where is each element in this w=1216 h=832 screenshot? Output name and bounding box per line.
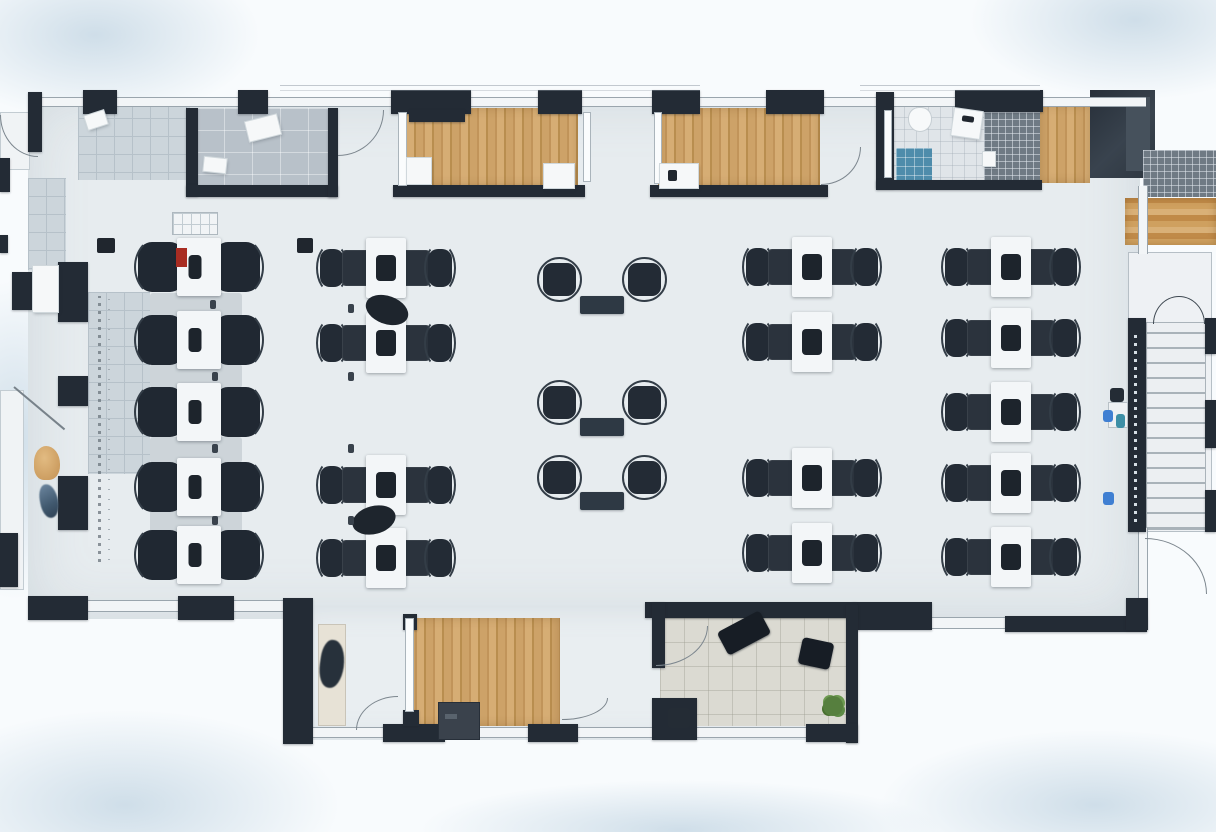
- side-table-m2: [580, 418, 624, 436]
- wall-left-block-2: [58, 262, 88, 322]
- coffee-machine: [668, 708, 690, 728]
- duo-desk: [177, 458, 221, 516]
- floor-chip-6: [348, 444, 354, 453]
- pod-chair-right-icon: [1053, 319, 1077, 357]
- floor-chip-2: [348, 304, 354, 313]
- desk-pod-c2: [748, 312, 878, 372]
- pod-desk: [991, 237, 1031, 297]
- floor-chip-5: [212, 444, 218, 453]
- wall-door-cap-bottom: [403, 710, 419, 726]
- wall-left-block-4: [58, 476, 88, 530]
- wall-stairs-right-2: [1205, 400, 1216, 448]
- construction-guides-2: [860, 85, 1040, 91]
- wood-strip-top: [1040, 105, 1090, 183]
- desk-pod-d2: [947, 308, 1077, 368]
- desk-pod-b1: [322, 238, 452, 298]
- wall-concrete-left: [186, 108, 198, 196]
- pod-chair-left-icon: [945, 319, 969, 357]
- pod-chair-left-icon: [320, 539, 344, 577]
- pair-chair-left-icon: [543, 386, 576, 419]
- pod-desk: [792, 448, 832, 508]
- wall-concrete-bottom: [186, 185, 338, 197]
- wall-wood1-inner-slab: [409, 110, 465, 122]
- mosaic-top-right: [1143, 150, 1216, 197]
- wall-lintel-t8: [955, 90, 1043, 112]
- wall-bottom-right-a: [852, 602, 932, 630]
- pod-chair-left-icon: [746, 534, 770, 572]
- wall-left-block-1: [12, 272, 32, 310]
- pod-chair-left-icon: [320, 249, 344, 287]
- floor-chip-3: [212, 372, 218, 381]
- desk-pod-d1: [947, 237, 1077, 297]
- shelf-table: [172, 212, 218, 235]
- pod-chair-left-icon: [945, 248, 969, 286]
- wood-room-bottom: [408, 618, 560, 726]
- pod-chair-left-icon: [320, 324, 344, 362]
- door-leaf-wood1-left: [398, 112, 407, 186]
- shower-tray: [983, 152, 995, 166]
- wood-bean-table: [34, 446, 60, 480]
- left-tile-strip: [28, 178, 66, 270]
- left-kitchen-cabinet: [33, 266, 58, 312]
- pod-chair-left-icon: [746, 459, 770, 497]
- pod-chair-right-icon: [428, 466, 452, 504]
- wall-stairs-right-3: [1205, 490, 1216, 532]
- wall-left-block-5: [0, 158, 10, 192]
- desk-pod-c3: [748, 448, 878, 508]
- pair-chair-right-icon: [628, 386, 661, 419]
- lounge-plant: [823, 696, 843, 716]
- pod-desk: [991, 382, 1031, 442]
- red-box-on-desk: [176, 248, 187, 267]
- wall-bottom-left-2: [178, 596, 234, 620]
- water-bottle-blue: [1103, 492, 1114, 505]
- dimension-marks-left: [98, 296, 110, 562]
- paper-concrete-room: [203, 157, 226, 173]
- water-station: [1106, 388, 1130, 434]
- printer-right: [297, 238, 313, 253]
- pod-chair-right-icon: [428, 324, 452, 362]
- pod-chair-right-icon: [854, 459, 878, 497]
- wall-lounge-right: [846, 605, 858, 743]
- duo-desk: [177, 238, 221, 296]
- pod-chair-right-icon: [854, 248, 878, 286]
- pod-desk: [792, 523, 832, 583]
- desk-duo-a4: [138, 458, 260, 516]
- dimension-marks-stairs: [1130, 330, 1140, 522]
- pod-chair-right-icon: [1053, 393, 1077, 431]
- smudge-bottom-center: [420, 780, 940, 832]
- wall-lintel-t6: [766, 90, 824, 114]
- desk-pod-d3: [947, 382, 1077, 442]
- door-leaf-bath: [884, 110, 892, 178]
- desk-pod-c1: [748, 237, 878, 297]
- chair-pair-m2: [543, 386, 661, 420]
- door-leaf-bottom-room: [405, 618, 414, 712]
- pod-chair-right-icon: [854, 534, 878, 572]
- pod-desk: [792, 312, 832, 372]
- cup-icon: [1116, 414, 1125, 428]
- pair-chair-right-icon: [628, 461, 661, 494]
- side-table-m1: [580, 296, 624, 314]
- bathroom-sink: [951, 108, 982, 139]
- pair-chair-left-icon: [543, 263, 576, 296]
- duo-desk: [177, 526, 221, 584]
- wall-left-block-6: [0, 533, 18, 587]
- desk-pod-d4: [947, 453, 1077, 513]
- wall-left-block-7: [0, 235, 8, 253]
- desk-duo-a1: [138, 238, 260, 296]
- construction-guides-1: [280, 85, 700, 91]
- gray-storage-cabinet: [438, 702, 480, 740]
- pod-chair-right-icon: [1053, 248, 1077, 286]
- floor-chip-7: [212, 516, 218, 525]
- stair-treads: [1146, 322, 1206, 530]
- pod-desk: [991, 453, 1031, 513]
- bathroom-blue-tiles: [896, 148, 932, 182]
- pod-chair-left-icon: [320, 466, 344, 504]
- duo-desk: [177, 311, 221, 369]
- pod-chair-left-icon: [945, 464, 969, 502]
- wall-pillar-t4: [538, 90, 582, 114]
- chair-pair-m1: [543, 263, 661, 297]
- duo-desk: [177, 383, 221, 441]
- pod-chair-right-icon: [854, 323, 878, 361]
- desk-duo-a2: [138, 311, 260, 369]
- desk-pod-d5: [947, 527, 1077, 587]
- pod-chair-left-icon: [746, 248, 770, 286]
- chair-pair-m3: [543, 461, 661, 495]
- side-table-m3: [580, 492, 624, 510]
- toilet: [908, 107, 932, 132]
- floor-chip-8: [348, 516, 354, 525]
- pod-chair-right-icon: [428, 539, 452, 577]
- pod-desk: [792, 237, 832, 297]
- wall-pillar-t5: [652, 90, 700, 114]
- pod-desk: [991, 527, 1031, 587]
- cabinet-wood2: [660, 164, 698, 188]
- pod-chair-right-icon: [1053, 538, 1077, 576]
- kettle-icon: [1110, 388, 1124, 402]
- bottle-icon: [1103, 410, 1113, 422]
- pair-chair-left-icon: [543, 461, 576, 494]
- desk-pod-b4: [322, 528, 452, 588]
- wall-bath-bottom: [876, 180, 1042, 190]
- cabinet-wood1-right: [544, 164, 574, 188]
- window-right-upper: [1138, 186, 1148, 254]
- door-leaf-wood1-right: [583, 112, 591, 182]
- desk-duo-a5: [138, 526, 260, 584]
- pod-desk: [366, 528, 406, 588]
- desk-duo-a3: [138, 383, 260, 441]
- pod-desk: [366, 238, 406, 298]
- wall-bottom-ext-corner: [283, 598, 313, 744]
- pod-chair-left-icon: [746, 323, 770, 361]
- pod-chair-left-icon: [945, 393, 969, 431]
- wall-left-block-3: [58, 376, 88, 406]
- printer-left: [97, 238, 115, 253]
- floor-chip-4: [348, 372, 354, 381]
- floor-chip-1: [210, 300, 216, 309]
- pod-desk: [991, 308, 1031, 368]
- wall-bottom-ext-2: [528, 724, 578, 742]
- wall-bottom-left-1: [28, 596, 88, 620]
- wall-pillar-t2: [238, 90, 268, 114]
- wall-stairs-right-1: [1205, 318, 1216, 354]
- cabinet-wood1-left: [407, 158, 431, 184]
- wall-concrete-right: [328, 108, 338, 197]
- pod-chair-right-icon: [1053, 464, 1077, 502]
- floor-plan-canvas: [0, 0, 1216, 832]
- pod-chair-left-icon: [945, 538, 969, 576]
- door-arc-bottom-right: [1145, 538, 1207, 594]
- shower-mosaic-room: [984, 105, 1040, 183]
- desk-pod-c4: [748, 523, 878, 583]
- pod-chair-right-icon: [428, 249, 452, 287]
- wall-bottom-right-corner: [1126, 598, 1148, 630]
- wall-lounge-bottom: [806, 724, 858, 742]
- pair-chair-right-icon: [628, 263, 661, 296]
- speck-wood2: [668, 170, 677, 181]
